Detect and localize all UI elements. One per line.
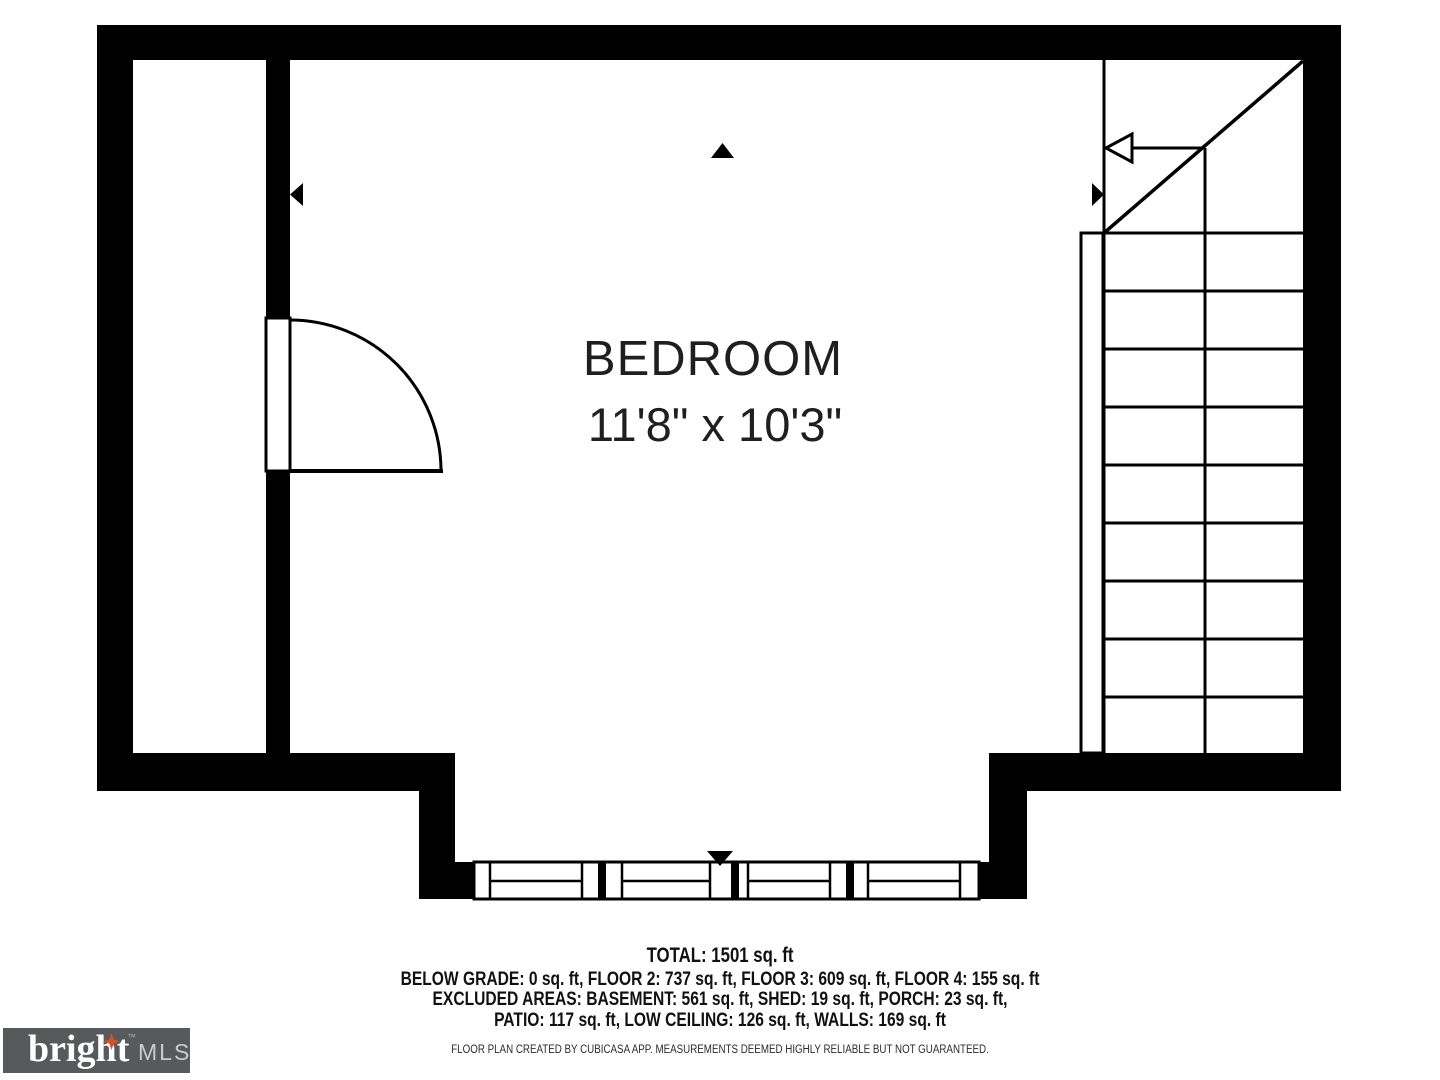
- wall-top: [97, 25, 1341, 60]
- floor-plan-drawing: BEDROOM 11'8" x 10'3": [0, 0, 1440, 1080]
- brightmls-logo: bright ™ MLS: [3, 1028, 190, 1073]
- logo-suffix-text: MLS: [138, 1039, 191, 1066]
- star-icon: [103, 1033, 120, 1050]
- wall-right: [1303, 25, 1341, 791]
- triangle-left-icon: [290, 183, 303, 206]
- disclaimer-text: FLOOR PLAN CREATED BY CUBICASA APP. MEAS…: [108, 1044, 1332, 1056]
- summary-excluded-2: PATIO: 117 sq. ft, LOW CEILING: 126 sq. …: [144, 1009, 1296, 1032]
- door: [266, 318, 443, 471]
- triangle-up-icon: [711, 143, 734, 158]
- wall-bottom-left: [97, 753, 455, 791]
- summary-total: TOTAL: 1501 sq. ft: [144, 944, 1296, 968]
- bay-wall-left: [419, 753, 455, 899]
- bay-wall-right: [989, 753, 1027, 899]
- room-dimensions: 11'8" x 10'3": [588, 398, 842, 451]
- door-jamb: [266, 318, 290, 471]
- arrow-left-icon: [1106, 134, 1132, 162]
- summary-excluded-1: EXCLUDED AREAS: BASEMENT: 561 sq. ft, SH…: [144, 988, 1296, 1011]
- bay-window: [474, 862, 979, 899]
- floor-plan-page: BEDROOM 11'8" x 10'3" TOTAL: 1501 sq. ft…: [0, 0, 1440, 1080]
- staircase: [1081, 60, 1303, 753]
- bay-wall-left-nub: [455, 862, 474, 899]
- wall-bottom-right: [989, 753, 1341, 791]
- wall-interior-lower: [266, 471, 290, 753]
- room-label: BEDROOM: [583, 332, 843, 386]
- wall-left: [97, 25, 133, 791]
- wall-interior-upper: [266, 60, 290, 318]
- logo-trademark: ™: [127, 1032, 136, 1042]
- triangle-right-icon: [1092, 183, 1104, 206]
- stair-knee-wall: [1081, 233, 1103, 753]
- door-swing-arc: [290, 320, 441, 471]
